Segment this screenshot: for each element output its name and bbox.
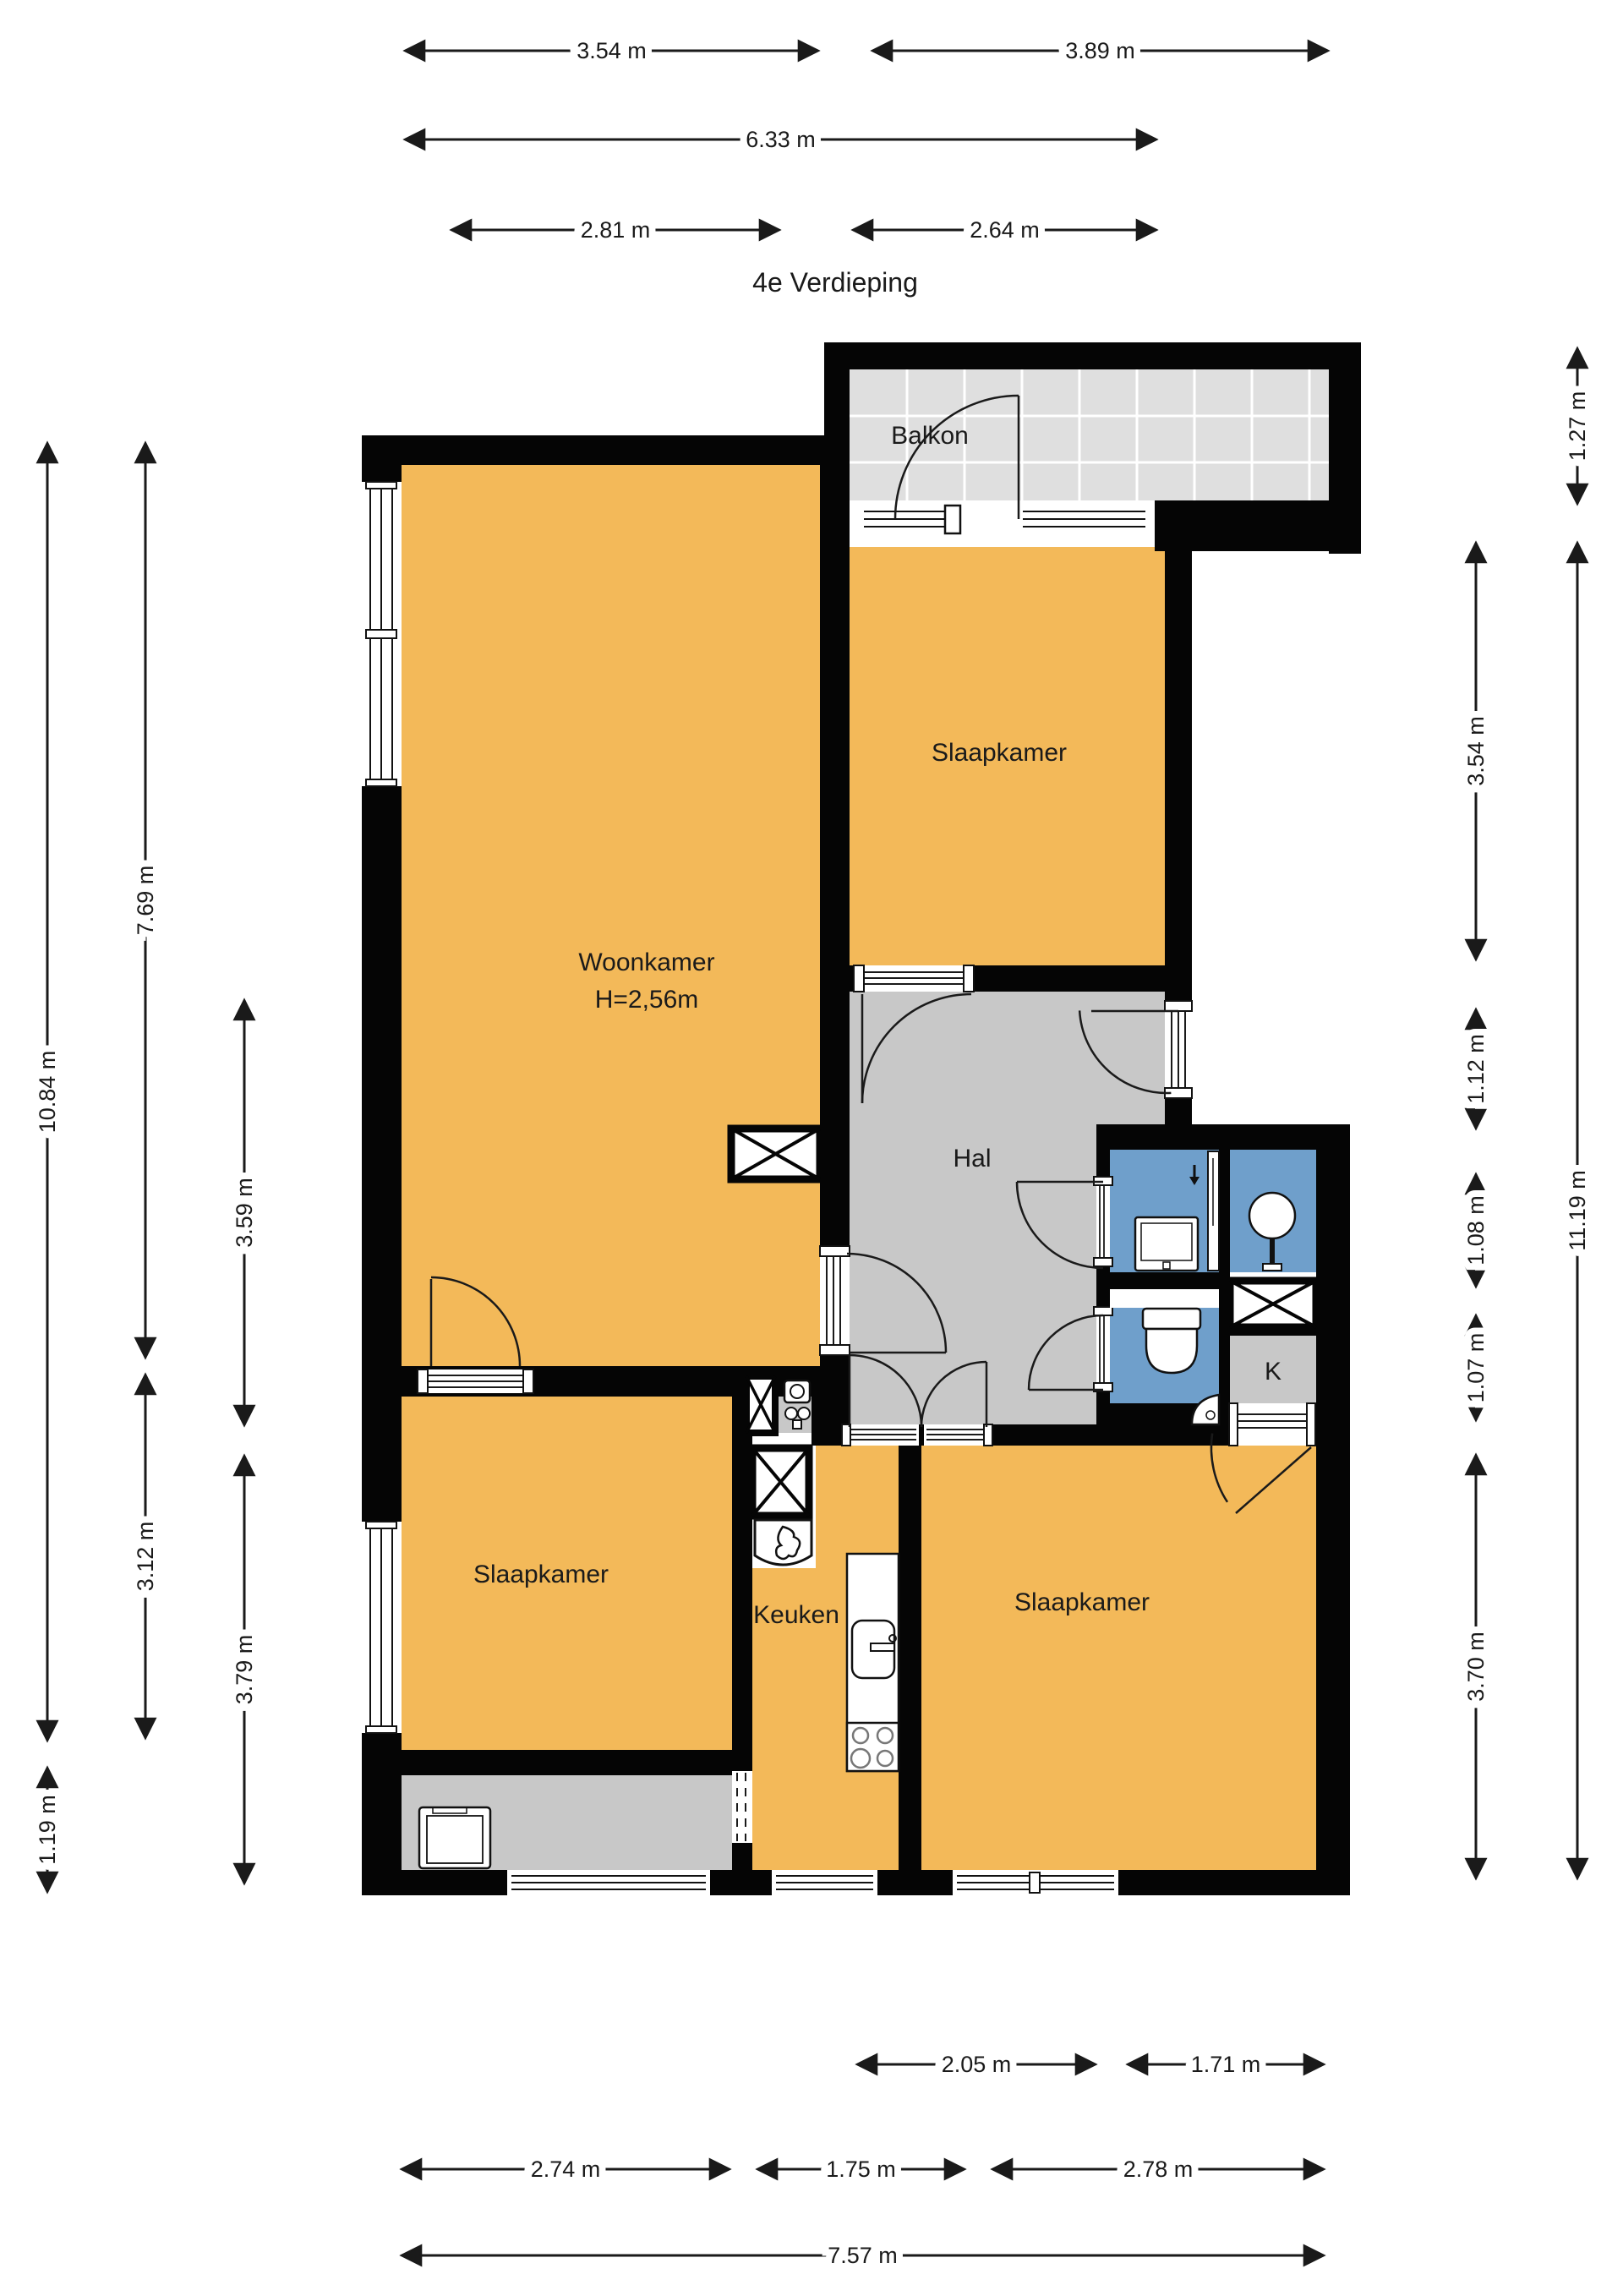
woonkamer-label: Woonkamer (578, 948, 714, 976)
washing-machine-icon (1135, 1217, 1198, 1271)
svg-text:2.05 m: 2.05 m (942, 2052, 1012, 2077)
slaapkamer-bottom-floor (921, 1446, 1316, 1870)
svg-text:3.79 m: 3.79 m (232, 1635, 257, 1705)
slaapkamer-left-window (362, 1522, 402, 1733)
svg-text:2.74 m: 2.74 m (531, 2157, 601, 2182)
berging-bottom-window (507, 1870, 710, 1895)
dim-10.84m: 10.84 m10.84 m (35, 443, 60, 1741)
svg-text:1.75 m: 1.75 m (826, 2157, 896, 2182)
keuken-bottom-window (772, 1870, 877, 1895)
svg-text:1.71 m: 1.71 m (1191, 2052, 1261, 2077)
woonkamer-height-note: H=2,56m (595, 986, 699, 1014)
svg-text:1.08 m: 1.08 m (1463, 1195, 1489, 1266)
keuken-shaft-x-icon (752, 1448, 809, 1516)
keuken-label: Keuken (753, 1601, 839, 1629)
page-title: 4e Verdieping (752, 267, 918, 298)
dim-2.05m: 2.05 m2.05 m (857, 2052, 1096, 2077)
woonkamer-window (362, 482, 402, 786)
dim-2.78m: 2.78 m2.78 m (992, 2157, 1324, 2182)
slaapkamer-top-label: Slaapkamer (932, 739, 1067, 767)
svg-text:7.69 m: 7.69 m (133, 866, 158, 936)
small-shaft-x-icon (746, 1376, 775, 1433)
dim-2.81m: 2.81 m2.81 m (451, 217, 779, 243)
dim-6.33m: 6.33 m6.33 m (405, 127, 1156, 152)
woonkamer-floor (402, 465, 820, 1366)
svg-text:3.12 m: 3.12 m (133, 1522, 158, 1592)
dim-2.64m: 2.64 m2.64 m (853, 217, 1156, 243)
svg-text:3.54 m: 3.54 m (1463, 716, 1489, 786)
svg-text:11.19 m: 11.19 m (1565, 1170, 1590, 1251)
dim-7.69m: 7.69 m7.69 m (133, 443, 158, 1358)
svg-text:3.70 m: 3.70 m (1463, 1632, 1489, 1702)
svg-text:1.07 m: 1.07 m (1463, 1333, 1489, 1403)
dim-3.54m: 3.54 m3.54 m (405, 38, 818, 63)
dim-1.71m: 1.71 m1.71 m (1128, 2052, 1324, 2077)
floorplan-drawing: 4e Verdieping Balkon Woonkamer H=2,56m S… (0, 0, 1623, 2296)
svg-text:6.33 m: 6.33 m (746, 127, 816, 152)
dim-1.07m: 1.07 m1.07 m (1463, 1315, 1489, 1420)
dim-1.08m: 1.08 m1.08 m (1463, 1174, 1489, 1287)
slaapkamer-left-label: Slaapkamer (473, 1561, 609, 1588)
svg-text:7.57 m: 7.57 m (828, 2243, 898, 2268)
svg-text:2.64 m: 2.64 m (970, 217, 1040, 243)
svg-text:2.78 m: 2.78 m (1123, 2157, 1194, 2182)
dim-1.75m: 1.75 m1.75 m (757, 2157, 965, 2182)
svg-text:1.12 m: 1.12 m (1463, 1034, 1489, 1104)
dim-1.27m: 1.27 m1.27 m (1565, 348, 1590, 504)
dim-3.59m: 3.59 m3.59 m (232, 1000, 257, 1425)
balkon-label: Balkon (891, 422, 969, 450)
svg-text:1.19 m: 1.19 m (35, 1795, 60, 1865)
bathroom-shaft-x-icon (1230, 1281, 1316, 1327)
woonkamer-shaft-x-icon (731, 1129, 820, 1179)
svg-text:3.54 m: 3.54 m (577, 38, 647, 63)
door-berging-keuken (732, 1771, 752, 1843)
kitchen-sink-icon (852, 1621, 896, 1678)
berging-washing-machine-icon (419, 1807, 490, 1868)
svg-text:3.89 m: 3.89 m (1065, 38, 1135, 63)
slaapkamer-bottom-label: Slaapkamer (1014, 1588, 1150, 1616)
dim-1.12m: 1.12 m1.12 m (1463, 1009, 1489, 1129)
dim-3.12m: 3.12 m3.12 m (133, 1375, 158, 1738)
dim-1.19m: 1.19 m1.19 m (35, 1768, 60, 1892)
dim-7.57m: 7.57 m7.57 m (402, 2243, 1324, 2268)
slaapkamer-bottom-window (953, 1870, 1118, 1895)
svg-text:3.59 m: 3.59 m (232, 1178, 257, 1248)
svg-text:1.27 m: 1.27 m (1565, 391, 1590, 462)
boiler-flame-icon (755, 1520, 811, 1565)
dim-11.19m: 11.19 m11.19 m (1565, 543, 1590, 1878)
dim-3.89m: 3.89 m3.89 m (872, 38, 1328, 63)
dim-2.74m: 2.74 m2.74 m (402, 2157, 730, 2182)
dim-3.70m: 3.70 m3.70 m (1463, 1455, 1489, 1878)
stove-burners-icon (847, 1723, 899, 1771)
floorplan-canvas: 4e Verdieping Balkon Woonkamer H=2,56m S… (0, 0, 1623, 2296)
dim-3.54m: 3.54 m3.54 m (1463, 543, 1489, 959)
kast-label: K (1265, 1358, 1281, 1386)
svg-text:2.81 m: 2.81 m (581, 217, 651, 243)
hal-label: Hal (953, 1145, 991, 1173)
shower-partition (1208, 1151, 1219, 1271)
kitchen-counter (847, 1554, 899, 1771)
dim-3.79m: 3.79 m3.79 m (232, 1456, 257, 1883)
svg-text:10.84 m: 10.84 m (35, 1051, 60, 1134)
